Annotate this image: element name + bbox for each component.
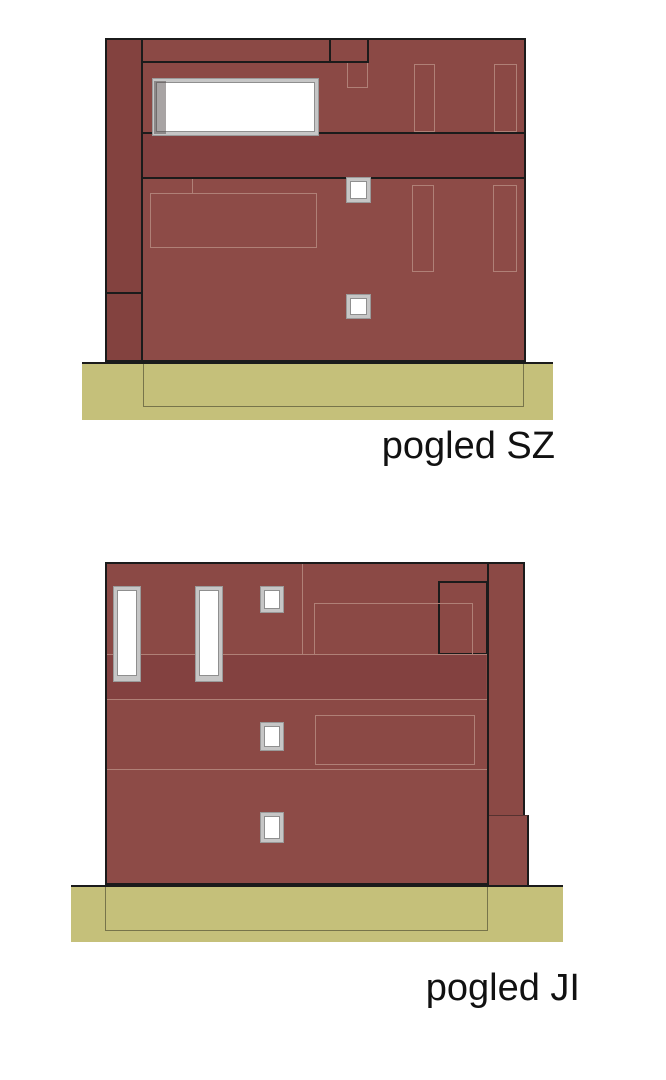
drawing-sheet: pogled SZ pogled JI bbox=[0, 0, 666, 1080]
facade-slab-band bbox=[143, 133, 524, 179]
facade-panel-lower bbox=[107, 770, 486, 883]
view-label-ji: pogled JI bbox=[340, 968, 580, 1010]
window-vertical bbox=[114, 587, 140, 681]
window-vertical bbox=[196, 587, 222, 681]
foundation-outline bbox=[143, 364, 524, 407]
panel-joint-rect bbox=[414, 64, 435, 132]
panel-joint-line-horizontal bbox=[107, 699, 487, 700]
window-small-square bbox=[347, 295, 370, 318]
parapet-divider-line-a bbox=[329, 40, 331, 63]
panel-joint-rect bbox=[150, 193, 317, 248]
panel-joint-rect bbox=[412, 185, 434, 272]
facade-step-extension bbox=[489, 815, 529, 885]
window-small-square bbox=[347, 178, 370, 202]
window-small-square bbox=[261, 587, 283, 612]
panel-joint-line-horizontal bbox=[107, 769, 487, 770]
panel-joint-line bbox=[192, 179, 193, 194]
window-small-square bbox=[261, 813, 283, 842]
parapet-bottom-line bbox=[143, 61, 369, 63]
panel-joint-rect bbox=[314, 603, 473, 655]
slab-bottom-line bbox=[143, 177, 524, 179]
panel-joint-rect bbox=[494, 64, 517, 132]
facade-slab-band bbox=[107, 655, 486, 700]
panel-joint-line-horizontal bbox=[107, 654, 487, 655]
parapet-divider-line-b bbox=[367, 40, 369, 63]
panel-joint-rect bbox=[315, 715, 475, 765]
window-small-square bbox=[261, 723, 283, 750]
window-reveal-shadow bbox=[154, 81, 166, 134]
view-label-sz: pogled SZ bbox=[325, 426, 555, 468]
panel-joint-square bbox=[347, 63, 368, 88]
panel-joint-line bbox=[302, 564, 303, 655]
panel-joint-rect bbox=[493, 185, 517, 272]
corner-strip-divider-line bbox=[107, 292, 143, 294]
window-horizontal bbox=[153, 79, 318, 135]
facade-corner-strip bbox=[107, 40, 143, 360]
foundation-outline bbox=[105, 887, 488, 931]
